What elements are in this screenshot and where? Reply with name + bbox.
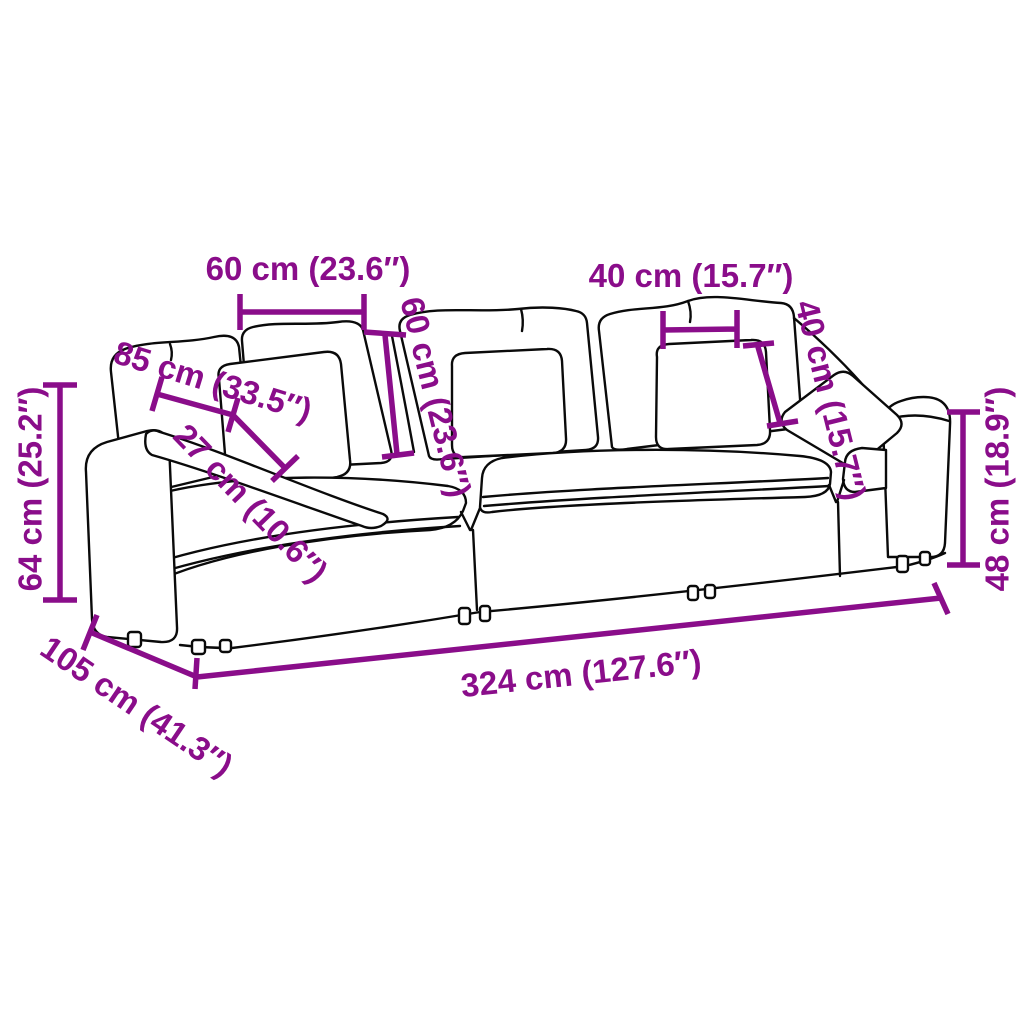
pillow-middle	[452, 349, 566, 457]
base-seam-left	[473, 530, 477, 610]
dimension-arm-height-label: 48 cm (18.9″)	[979, 387, 1016, 592]
sofa-leg	[480, 606, 490, 621]
dimension-overall-width: 324 cm (127.6″)	[195, 583, 948, 704]
dimension-overall-height-label: 64 cm (25.2″)	[12, 387, 49, 592]
sofa-dimension-diagram: 60 cm (23.6″) 60 cm (23.6″) 85 cm (33.5″…	[0, 0, 1024, 1024]
dimension-arm-height: 48 cm (18.9″)	[947, 387, 1016, 592]
dimension-back-cushion-width-label: 60 cm (23.6″)	[206, 250, 411, 287]
sofa-leg	[459, 608, 470, 624]
pillow-right	[656, 340, 770, 449]
sofa-leg	[220, 640, 231, 652]
sofa-leg	[688, 586, 698, 600]
dimension-pillow-width-label: 40 cm (15.7″)	[589, 257, 794, 294]
dimension-overall-height: 64 cm (25.2″)	[12, 385, 77, 600]
sofa-leg	[897, 556, 908, 572]
sofa-leg	[705, 585, 715, 598]
dimension-diagram-page: 60 cm (23.6″) 60 cm (23.6″) 85 cm (33.5″…	[0, 0, 1024, 1024]
sofa-leg	[128, 632, 141, 647]
dimension-back-cushion-width: 60 cm (23.6″)	[206, 250, 411, 330]
sofa-leg	[192, 640, 205, 654]
left-armrest	[86, 430, 177, 642]
base-seam-right	[838, 502, 840, 576]
dimension-overall-width-label: 324 cm (127.6″)	[459, 642, 703, 704]
sofa-leg	[920, 552, 930, 565]
